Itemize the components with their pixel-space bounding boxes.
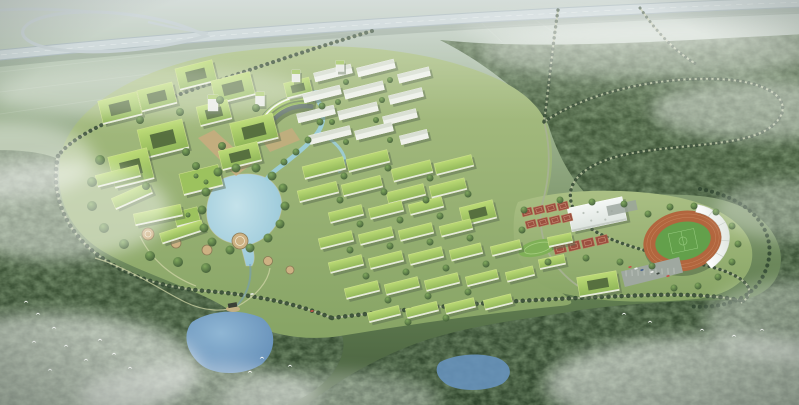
vignette [0, 0, 799, 405]
rendering-canvas [0, 0, 799, 405]
aerial-campus-rendering [0, 0, 799, 405]
